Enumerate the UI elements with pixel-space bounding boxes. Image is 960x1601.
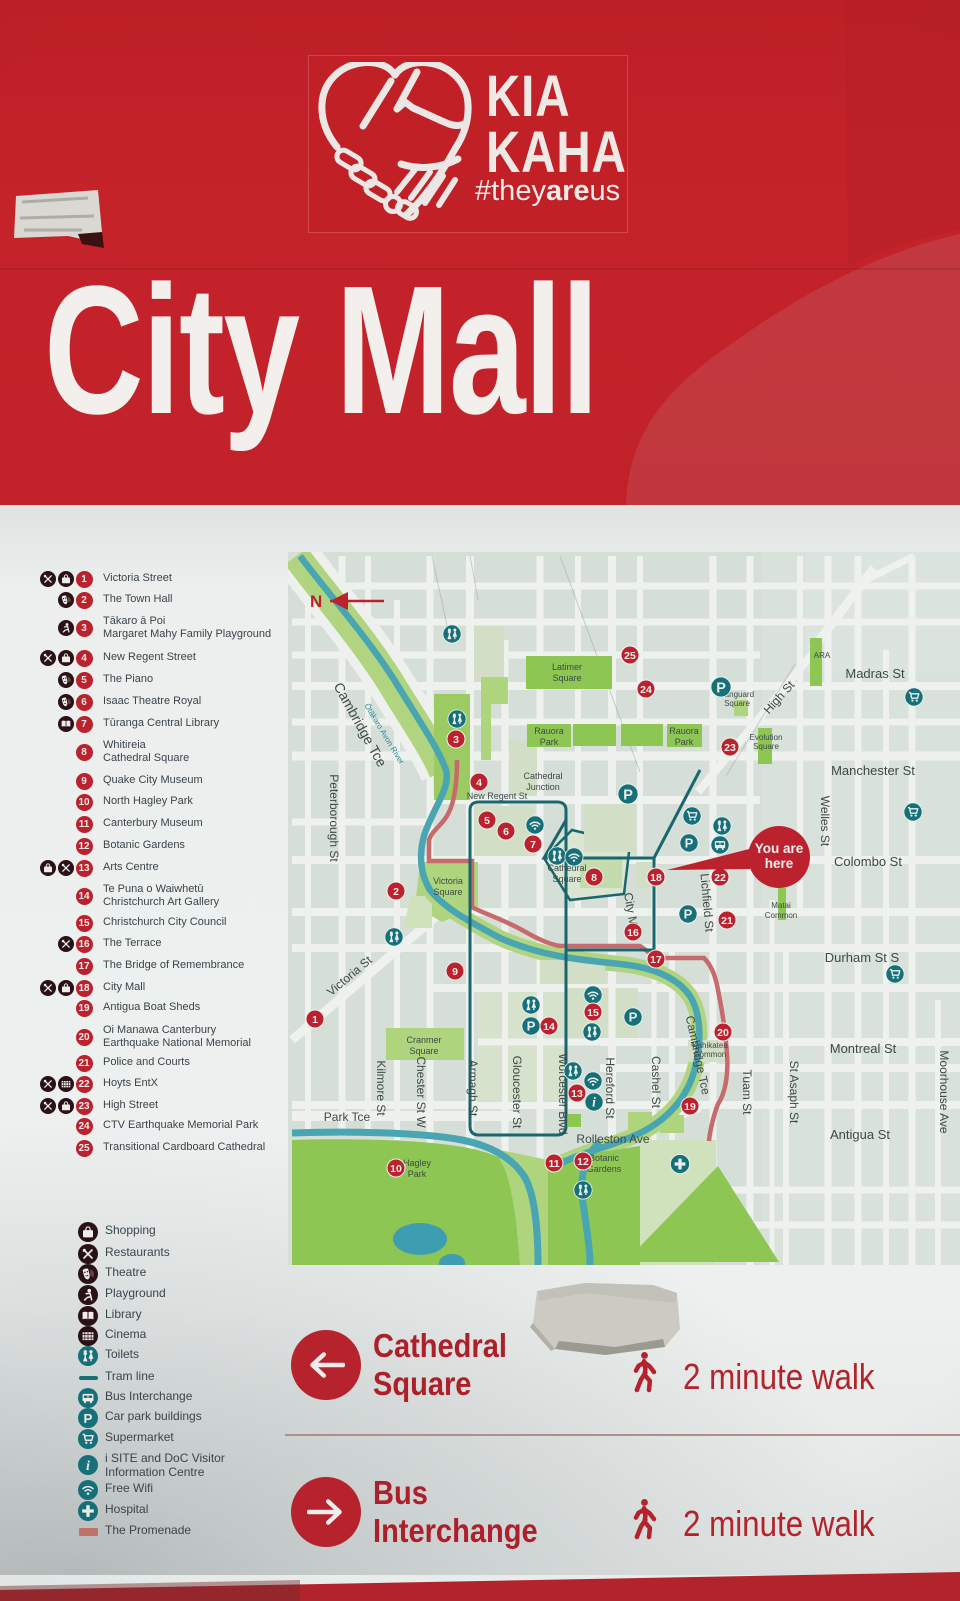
svg-text:2: 2 (393, 886, 399, 898)
svg-text:5: 5 (484, 815, 490, 827)
svg-text:17: 17 (650, 954, 662, 966)
svg-text:Square: Square (552, 874, 581, 884)
svg-text:Moorhouse Ave: Moorhouse Ave (937, 1050, 951, 1133)
svg-text:ARA: ARA (814, 651, 831, 660)
svg-text:P: P (684, 907, 693, 922)
svg-text:14: 14 (543, 1021, 555, 1033)
svg-text:Square: Square (552, 673, 581, 683)
svg-text:Park: Park (675, 737, 694, 747)
svg-text:Peterborough St: Peterborough St (327, 774, 341, 862)
svg-text:Square: Square (433, 887, 462, 897)
svg-text:Manchester St: Manchester St (831, 763, 915, 778)
svg-text:Junction: Junction (526, 782, 560, 792)
svg-text:21: 21 (721, 915, 733, 927)
svg-text:13: 13 (571, 1088, 583, 1100)
svg-text:St Asaph St: St Asaph St (787, 1061, 801, 1124)
svg-text:You are: You are (755, 841, 804, 856)
svg-text:Gloucester St: Gloucester St (510, 1056, 524, 1129)
svg-text:P: P (716, 680, 726, 696)
svg-text:P: P (623, 787, 633, 803)
svg-text:Cranmer: Cranmer (406, 1035, 441, 1045)
svg-text:Common: Common (694, 1050, 726, 1059)
svg-text:11: 11 (548, 1158, 559, 1170)
svg-text:New Regent St: New Regent St (467, 791, 528, 801)
svg-text:20: 20 (717, 1027, 729, 1039)
svg-text:Hagley: Hagley (403, 1158, 432, 1168)
svg-text:N: N (310, 592, 322, 611)
svg-text:Park Tce: Park Tce (324, 1110, 371, 1124)
svg-text:18: 18 (650, 872, 662, 884)
svg-text:Square: Square (724, 699, 750, 708)
svg-text:P: P (629, 1010, 638, 1025)
svg-text:24: 24 (640, 684, 652, 696)
svg-text:Evolution: Evolution (750, 733, 783, 742)
svg-text:P: P (84, 1411, 93, 1426)
svg-text:Victoria: Victoria (433, 876, 463, 886)
svg-text:6: 6 (503, 826, 509, 838)
svg-text:Kilmore St: Kilmore St (374, 1060, 388, 1116)
svg-text:Hereford St: Hereford St (603, 1057, 617, 1119)
svg-text:Madras St: Madras St (845, 666, 905, 681)
svg-text:Rauora: Rauora (534, 726, 564, 736)
svg-text:Common: Common (765, 911, 797, 920)
svg-text:Chester St W: Chester St W (414, 1056, 428, 1128)
svg-text:Square: Square (409, 1046, 438, 1056)
svg-text:Rauora: Rauora (669, 726, 699, 736)
svg-text:i: i (592, 1094, 596, 1109)
svg-text:P: P (527, 1019, 536, 1034)
svg-text:Park: Park (540, 737, 559, 747)
svg-text:12: 12 (577, 1156, 589, 1168)
svg-text:Park: Park (408, 1169, 427, 1179)
svg-text:15: 15 (587, 1007, 599, 1019)
svg-text:i: i (86, 1458, 90, 1474)
svg-text:Colombo St: Colombo St (834, 854, 902, 869)
svg-text:P: P (685, 836, 694, 851)
svg-text:25: 25 (624, 650, 636, 662)
svg-text:9: 9 (452, 966, 458, 978)
svg-text:3: 3 (453, 734, 459, 746)
svg-text:10: 10 (390, 1163, 402, 1175)
svg-text:16: 16 (627, 927, 639, 939)
svg-text:Cathedral: Cathedral (523, 771, 562, 781)
svg-text:Kahikatea: Kahikatea (692, 1041, 728, 1050)
svg-text:Montreal St: Montreal St (830, 1041, 897, 1056)
svg-text:Tuam St: Tuam St (740, 1070, 754, 1116)
svg-text:here: here (765, 856, 794, 871)
svg-text:Cashel St: Cashel St (649, 1056, 663, 1109)
svg-text:Botanic: Botanic (589, 1153, 620, 1163)
svg-text:Armagh St: Armagh St (466, 1060, 480, 1117)
svg-text:7: 7 (530, 839, 536, 851)
svg-text:19: 19 (684, 1101, 696, 1113)
svg-text:Square: Square (753, 742, 779, 751)
svg-text:1: 1 (312, 1014, 318, 1026)
svg-text:4: 4 (476, 777, 482, 789)
svg-text:Antigua St: Antigua St (830, 1127, 890, 1142)
svg-text:Gardens: Gardens (587, 1164, 622, 1174)
svg-text:Durham St S: Durham St S (825, 950, 900, 965)
svg-text:Latimer: Latimer (552, 662, 582, 672)
svg-text:Welles St: Welles St (818, 796, 832, 847)
svg-text:Rolleston Ave: Rolleston Ave (576, 1132, 649, 1146)
svg-text:Matai: Matai (771, 901, 791, 910)
svg-text:22: 22 (714, 872, 726, 884)
svg-text:23: 23 (724, 742, 736, 754)
svg-text:8: 8 (591, 872, 597, 884)
